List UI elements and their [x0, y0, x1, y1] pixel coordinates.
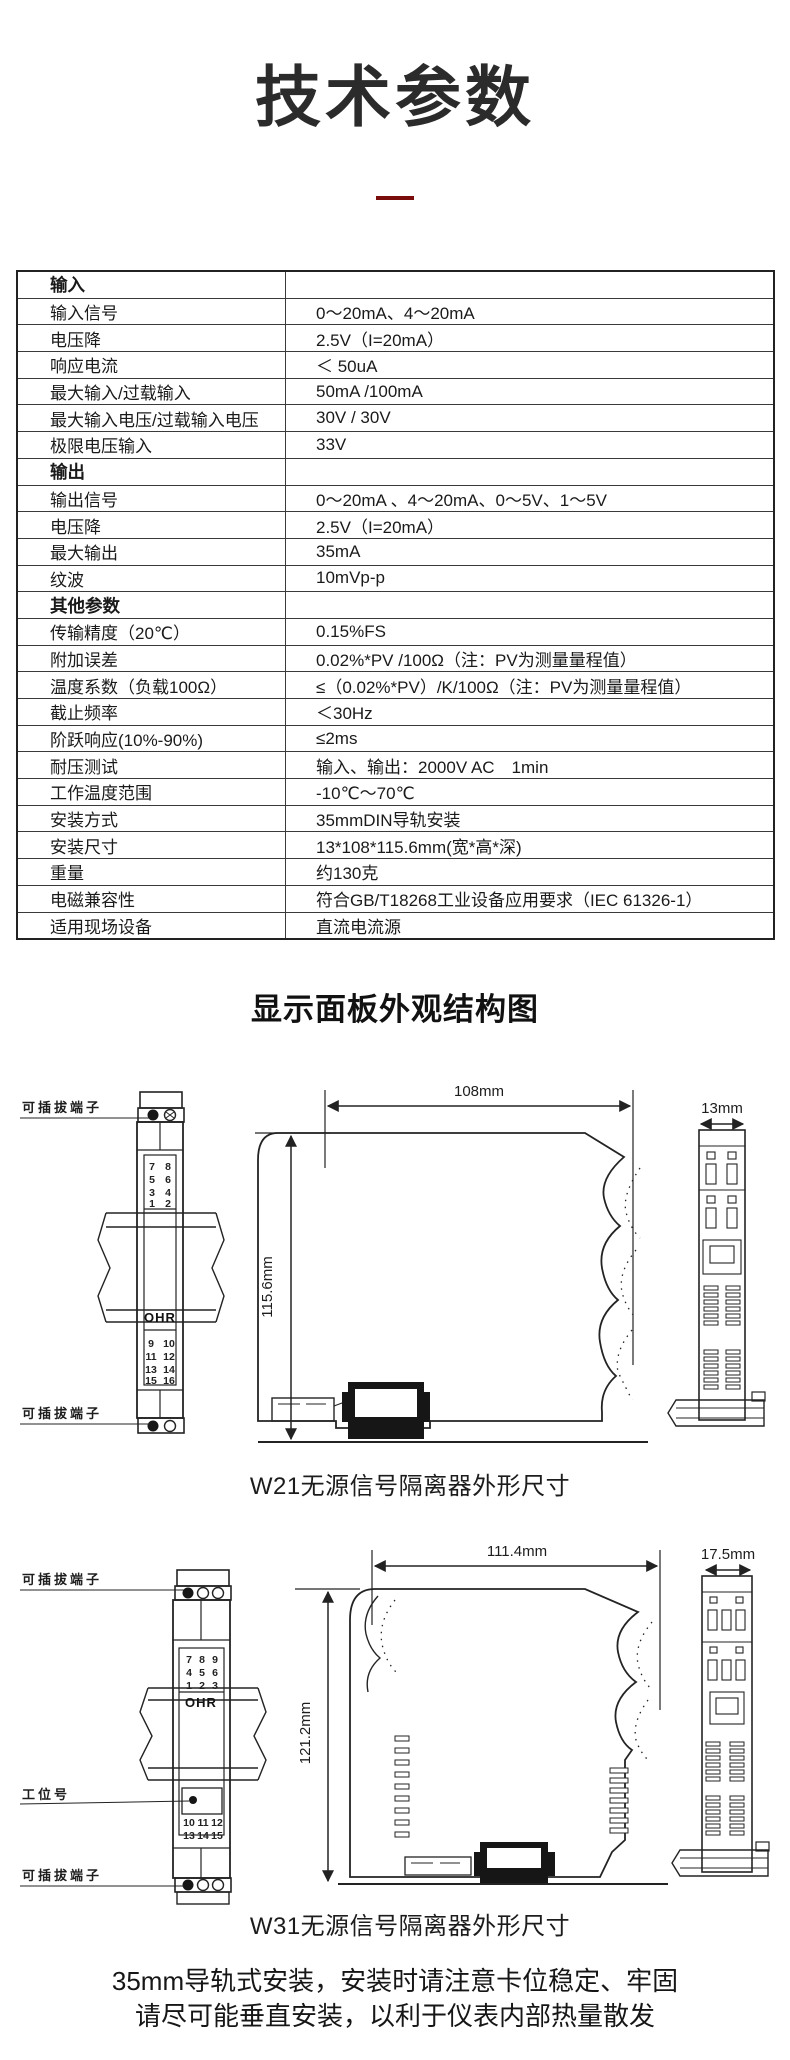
terminal-number: 9 [212, 1654, 218, 1666]
w21-side-view [255, 1133, 648, 1442]
table-row: 电磁兼容性符合GB/T18268工业设备应用要求（IEC 61326-1） [18, 885, 773, 912]
row-label: 重量 [18, 859, 286, 885]
table-row: 最大输入/过载输入50mA /100mA [18, 378, 773, 405]
w31-side-view [295, 1589, 668, 1884]
screw-terminal-icon [198, 1880, 209, 1891]
w21-narrow-view [668, 1130, 765, 1426]
row-label: 电压降 [18, 325, 286, 351]
terminal-number: 12 [211, 1817, 223, 1829]
row-value: 35mmDIN导轨安装 [286, 806, 773, 832]
row-value: 直流电流源 [286, 913, 773, 939]
table-row: 重量约130克 [18, 858, 773, 885]
row-value: 10mVp-p [286, 566, 773, 592]
screw-terminal-icon [148, 1110, 159, 1121]
screw-terminal-icon [183, 1588, 194, 1599]
row-label: 最大输入/过载输入 [18, 379, 286, 405]
row-value: 2.5V（I=20mA） [286, 325, 773, 351]
terminal-number: 14 [197, 1830, 209, 1842]
mounting-note-line2: 请尽可能垂直安装，以利于仪表内部热量散发 [0, 1999, 790, 2034]
terminal-number: 4 [186, 1667, 192, 1679]
row-value [286, 459, 773, 485]
row-value: 约130克 [286, 859, 773, 885]
table-row: 安装尺寸13*108*115.6mm(宽*高*深) [18, 831, 773, 858]
terminal-number: 5 [149, 1174, 155, 1186]
row-value: 0.15%FS [286, 619, 773, 645]
table-row: 最大输入电压/过载输入电压30V / 30V [18, 404, 773, 431]
w31-terminal-label-top: 可插拔端子 [22, 1572, 102, 1587]
terminal-number: 7 [149, 1161, 155, 1173]
w21-depth-dimension: 13mm [701, 1100, 743, 1117]
screw-terminal-icon [213, 1588, 224, 1599]
table-row: 传输精度（20℃）0.15%FS [18, 618, 773, 645]
row-value: 符合GB/T18268工业设备应用要求（IEC 61326-1） [286, 886, 773, 912]
row-label: 附加误差 [18, 646, 286, 672]
terminal-number: 6 [165, 1174, 171, 1186]
screw-terminal-icon [183, 1880, 194, 1891]
row-value: 50mA /100mA [286, 379, 773, 405]
table-row: 纹波10mVp-p [18, 565, 773, 592]
terminal-number: 8 [199, 1654, 205, 1666]
w31-terminal-label-bottom: 可插拔端子 [22, 1868, 102, 1883]
table-row: 电压降2.5V（I=20mA） [18, 511, 773, 538]
technical-parameters-page: 技术参数 输入输入信号0～20mA、4～20mA电压降2.5V（I=20mA）响… [0, 0, 790, 2060]
screw-terminal-icon [213, 1880, 224, 1891]
terminal-number: 11 [197, 1817, 208, 1829]
section-heading: 显示面板外观结构图 [0, 984, 790, 1029]
terminal-number: 8 [165, 1161, 171, 1173]
row-label: 极限电压输入 [18, 432, 286, 458]
row-label: 纹波 [18, 566, 286, 592]
row-value: 13*108*115.6mm(宽*高*深) [286, 832, 773, 858]
table-row: 适用现场设备直流电流源 [18, 912, 773, 939]
row-label: 其他参数 [18, 592, 286, 618]
terminal-number: 15 [211, 1830, 223, 1842]
row-value: ＜30Hz [286, 699, 773, 725]
row-label: 输入信号 [18, 299, 286, 325]
table-row: 温度系数（负载100Ω）≤（0.02%*PV）/K/100Ω（注：PV为测量量程… [18, 671, 773, 698]
table-row: 输出 [18, 458, 773, 485]
screw-terminal-icon [148, 1421, 159, 1432]
w21-din-rail [98, 1213, 224, 1322]
w21-front-view: 7 8 5 6 3 4 1 2 OHR 9 10 11 12 13 14 15 … [137, 1092, 184, 1433]
row-label: 安装方式 [18, 806, 286, 832]
row-value: 0.02%*PV /100Ω（注：PV为测量量程值） [286, 646, 773, 672]
title-accent-dash [376, 196, 414, 200]
row-value: 0～20mA、4～20mA [286, 299, 773, 325]
table-row: 响应电流＜ 50uA [18, 351, 773, 378]
w31-narrow-view [672, 1576, 769, 1876]
w21-outline-drawing: 7 8 5 6 3 4 1 2 OHR 9 10 11 12 13 14 15 … [0, 1050, 790, 1510]
terminal-number: 9 [148, 1338, 154, 1350]
w21-height-dimension: 115.6mm [259, 1256, 276, 1317]
row-value: ≤（0.02%*PV）/K/100Ω（注：PV为测量量程值） [286, 672, 773, 698]
row-label: 电磁兼容性 [18, 886, 286, 912]
w31-front-view: 7 8 9 4 5 6 1 2 3 OHR 10 11 12 13 14 15 [173, 1570, 231, 1904]
table-row: 电压降2.5V（I=20mA） [18, 324, 773, 351]
w21-terminal-label-bottom: 可插拔端子 [22, 1406, 102, 1421]
row-value [286, 272, 773, 298]
row-value: 33V [286, 432, 773, 458]
terminal-number: 13 [183, 1830, 195, 1842]
terminal-number: 10 [163, 1338, 175, 1350]
row-label: 适用现场设备 [18, 913, 286, 939]
row-value: ≤2ms [286, 726, 773, 752]
w31-caption: W31无源信号隔离器外形尺寸 [30, 1906, 790, 1941]
row-value: ＜ 50uA [286, 352, 773, 378]
table-row: 极限电压输入33V [18, 431, 773, 458]
terminal-number: 7 [186, 1654, 192, 1666]
row-label: 工作温度范围 [18, 779, 286, 805]
brand-logo: OHR [185, 1695, 217, 1710]
terminal-number: 16 [163, 1375, 175, 1387]
row-label: 传输精度（20℃） [18, 619, 286, 645]
w21-dimensions: 108mm 115.6mm 13mm [259, 1083, 743, 1439]
row-value [286, 592, 773, 618]
row-label: 电压降 [18, 512, 286, 538]
row-value: 35mA [286, 539, 773, 565]
table-row: 输入信号0～20mA、4～20mA [18, 298, 773, 325]
row-value: 0～20mA 、4～20mA、0～5V、1～5V [286, 486, 773, 512]
page-title: 技术参数 [0, 44, 790, 140]
table-row: 阶跃响应(10%-90%)≤2ms [18, 725, 773, 752]
w31-station-label: 工位号 [22, 1787, 70, 1802]
terminal-number: 1 [149, 1198, 155, 1210]
row-value: 30V / 30V [286, 405, 773, 431]
row-label: 安装尺寸 [18, 832, 286, 858]
w31-dimensions: 111.4mm 121.2mm 17.5mm [297, 1545, 755, 1881]
w21-width-dimension: 108mm [454, 1083, 504, 1100]
w31-outline-drawing: 7 8 9 4 5 6 1 2 3 OHR 10 11 12 13 14 15 [0, 1545, 790, 1965]
row-label: 输出 [18, 459, 286, 485]
terminal-number: 3 [212, 1680, 218, 1692]
table-row: 安装方式35mmDIN导轨安装 [18, 805, 773, 832]
table-row: 截止频率＜30Hz [18, 698, 773, 725]
table-row: 输出信号0～20mA 、4～20mA、0～5V、1～5V [18, 485, 773, 512]
row-value: 2.5V（I=20mA） [286, 512, 773, 538]
screw-terminal-icon [198, 1588, 209, 1599]
row-value: 输入、输出：2000V AC 1min [286, 752, 773, 778]
spec-table: 输入输入信号0～20mA、4～20mA电压降2.5V（I=20mA）响应电流＜ … [16, 270, 775, 940]
terminal-number: 12 [163, 1351, 175, 1363]
w31-width-dimension: 111.4mm [487, 1545, 547, 1560]
row-label: 响应电流 [18, 352, 286, 378]
terminal-number: 11 [145, 1351, 156, 1363]
row-label: 阶跃响应(10%-90%) [18, 726, 286, 752]
row-label: 耐压测试 [18, 752, 286, 778]
table-row: 耐压测试输入、输出：2000V AC 1min [18, 751, 773, 778]
terminal-number: 2 [165, 1198, 171, 1210]
row-label: 输出信号 [18, 486, 286, 512]
row-label: 截止频率 [18, 699, 286, 725]
w31-height-dimension: 121.2mm [297, 1702, 314, 1765]
row-label: 输入 [18, 272, 286, 298]
terminal-number: 15 [145, 1375, 157, 1387]
terminal-number: 6 [212, 1667, 218, 1679]
screw-terminal-icon [165, 1421, 176, 1432]
table-row: 其他参数 [18, 591, 773, 618]
row-label: 温度系数（负载100Ω） [18, 672, 286, 698]
mounting-note-line1: 35mm导轨式安装，安装时请注意卡位稳定、牢固 [0, 1964, 790, 1999]
row-value: -10℃～70℃ [286, 779, 773, 805]
mounting-note: 35mm导轨式安装，安装时请注意卡位稳定、牢固 请尽可能垂直安装，以利于仪表内部… [0, 1964, 790, 2034]
brand-logo: OHR [144, 1310, 176, 1325]
table-row: 输入 [18, 272, 773, 298]
w31-depth-dimension: 17.5mm [701, 1546, 755, 1563]
w21-terminal-label-top: 可插拔端子 [22, 1100, 102, 1115]
terminal-number: 1 [186, 1680, 192, 1692]
table-row: 附加误差0.02%*PV /100Ω（注：PV为测量量程值） [18, 645, 773, 672]
terminal-number: 5 [199, 1667, 205, 1679]
terminal-number: 10 [183, 1817, 195, 1829]
terminal-number: 2 [199, 1680, 205, 1692]
row-label: 最大输出 [18, 539, 286, 565]
w21-caption: W21无源信号隔离器外形尺寸 [30, 1466, 790, 1501]
table-row: 最大输出35mA [18, 538, 773, 565]
row-label: 最大输入电压/过载输入电压 [18, 405, 286, 431]
table-row: 工作温度范围-10℃～70℃ [18, 778, 773, 805]
